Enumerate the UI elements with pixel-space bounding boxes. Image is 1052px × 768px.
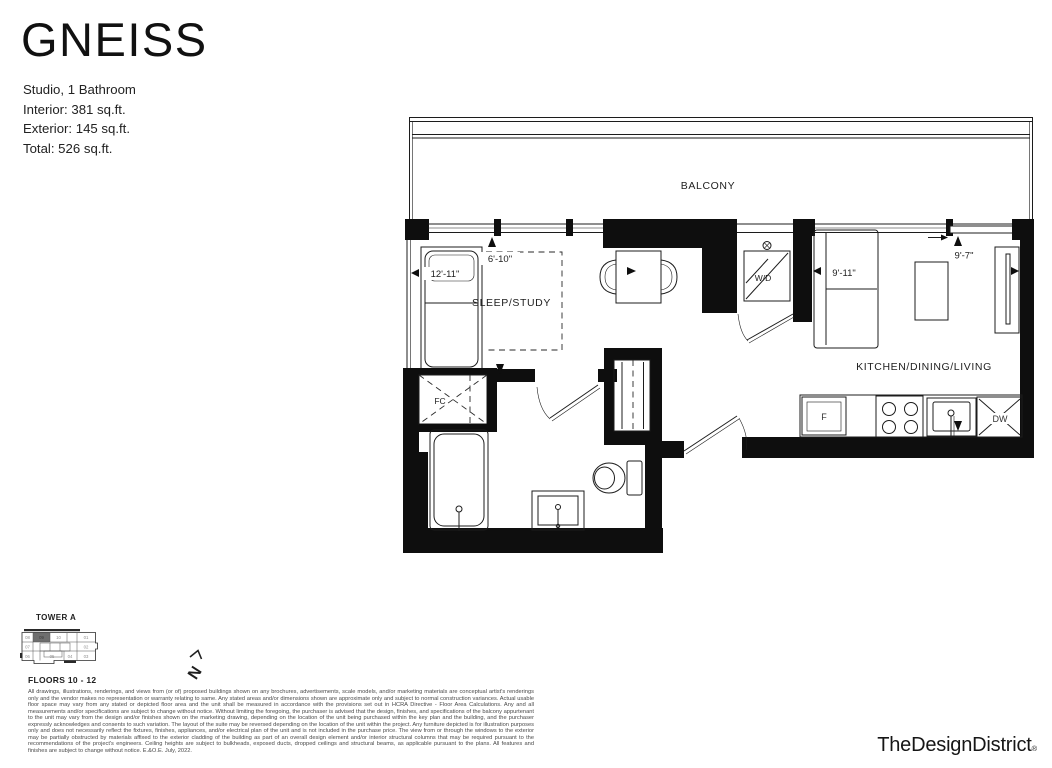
keyplan-unit: 08 <box>25 635 30 640</box>
sleep-study-room: SLEEP/STUDY <box>472 252 562 350</box>
sleep-study-label: SLEEP/STUDY <box>472 297 551 309</box>
keyplan-unit: 10 <box>56 635 61 640</box>
wd-door-swing <box>738 314 748 341</box>
fan-coil-closet: FC <box>419 368 497 432</box>
washer-dryer-closet: W/D <box>738 242 794 344</box>
registered-mark: ® <box>1032 744 1037 753</box>
window-mullion <box>494 219 501 236</box>
north-label: N <box>185 664 206 683</box>
fridge-label: F <box>821 412 827 422</box>
bathroom-door-swing <box>537 387 550 419</box>
spec-exterior: Exterior: 145 sq.ft. <box>23 119 136 139</box>
window-mullion <box>566 219 573 236</box>
sofa <box>814 230 878 348</box>
legal-disclaimer: All drawings, illustrations, renderings,… <box>28 689 534 754</box>
kitchen-sink <box>927 398 976 438</box>
tv-console <box>995 247 1019 333</box>
bathroom-door <box>537 385 600 421</box>
page-title: GNEISS <box>21 12 208 67</box>
dim-sleep-width: 12'-11" <box>431 269 460 280</box>
balcony: BALCONY <box>409 117 1033 222</box>
keyplan-unit-highlighted: 09 <box>39 635 44 640</box>
keyplan-unit: 02 <box>84 645 89 650</box>
balcony-label: BALCONY <box>681 180 735 192</box>
north-arrow-icon: N <box>182 646 222 686</box>
tower-label: TOWER A <box>36 613 76 622</box>
spec-interior: Interior: 381 sq.ft. <box>23 100 136 120</box>
dim-living-depth: 9'-7" <box>955 251 974 262</box>
bathroom: FC <box>403 368 663 553</box>
toilet <box>593 461 642 495</box>
keyplan: 08 09 10 01 07 02 06 05 04 03 <box>20 629 102 671</box>
balcony-sliding-door <box>950 226 1014 233</box>
dim-sleep-depth: 6'-10" <box>488 254 512 265</box>
dishwasher-label: DW <box>993 414 1008 424</box>
keyplan-unit: 07 <box>25 645 30 650</box>
spec-total: Total: 526 sq.ft. <box>23 139 136 159</box>
fridge: F <box>802 397 846 435</box>
washer-dryer-label: W/D <box>755 273 772 283</box>
vanity-sink <box>532 491 584 530</box>
brochure-page: GNEISS Studio, 1 Bathroom Interior: 381 … <box>0 0 1052 768</box>
entry-closet <box>604 348 662 445</box>
fan-coil-label: FC <box>434 396 445 406</box>
stove <box>876 396 923 437</box>
keyplan-unit: 03 <box>84 654 89 659</box>
keyplan-unit: 01 <box>84 635 89 640</box>
keyplan-unit: 06 <box>25 654 30 659</box>
kitchen-label: KITCHEN/DINING/LIVING <box>856 361 992 373</box>
spec-type: Studio, 1 Bathroom <box>23 80 136 100</box>
dishwasher: DW <box>977 397 1022 437</box>
floors-label: FLOORS 10 - 12 <box>28 675 96 685</box>
keyplan-unit: 05 <box>50 654 55 659</box>
dining-table <box>600 251 677 303</box>
brand-logo-text: TheDesignDistrict <box>877 734 1031 756</box>
bathtub <box>430 430 488 531</box>
brand-logo: TheDesignDistrict® <box>877 734 1037 757</box>
coffee-table <box>915 262 948 320</box>
dim-living-width: 9'-11" <box>832 268 856 279</box>
entry-door <box>662 416 747 458</box>
keyplan-unit: 04 <box>68 654 73 659</box>
bed <box>421 247 482 371</box>
unit-specs: Studio, 1 Bathroom Interior: 381 sq.ft. … <box>23 80 136 158</box>
kitchen-counter: F DW KITCHE <box>800 361 1022 438</box>
floor-plan: BALCONY <box>400 106 1045 578</box>
